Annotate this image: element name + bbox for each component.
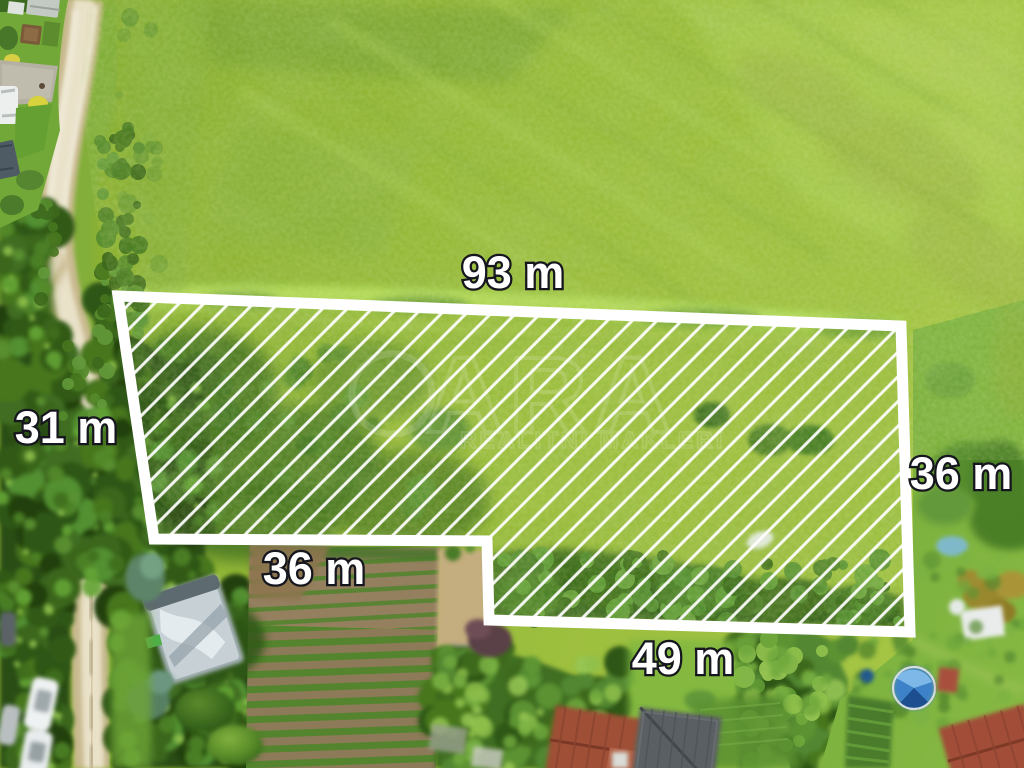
svg-text:36 m: 36 m xyxy=(910,448,1013,499)
svg-text:36 m: 36 m xyxy=(263,543,366,594)
svg-text:93 m: 93 m xyxy=(462,247,565,298)
svg-text:49 m: 49 m xyxy=(632,633,735,684)
svg-text:31 m: 31 m xyxy=(15,402,118,453)
